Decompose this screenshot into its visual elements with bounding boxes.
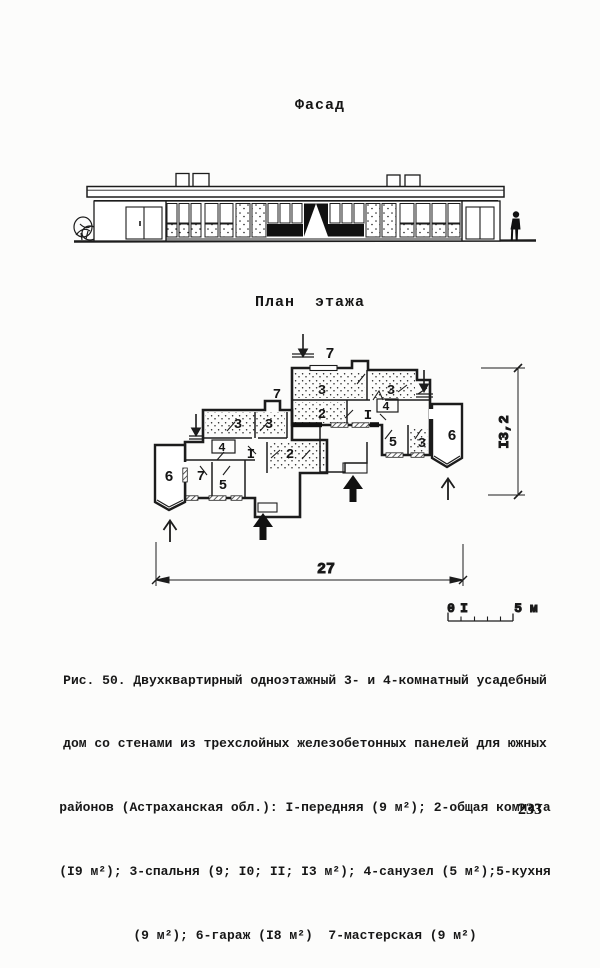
entrance-shadow-right — [328, 224, 364, 237]
right-garage-door — [466, 207, 494, 239]
entry-arrow-up-far-right — [442, 479, 455, 501]
caption-line: районов (Астраханская обл.): I-передняя … — [55, 797, 555, 818]
figure-caption: Рис. 50. Двухквартирный одноэтажный 3- и… — [55, 627, 555, 968]
scale-bar: 0 I 5 м — [447, 601, 538, 621]
room-label-workshop: 7 — [197, 469, 205, 485]
plan-title: План этажа — [10, 294, 600, 311]
room-label-garage-left: 6 — [164, 469, 173, 486]
room-label-bath: 4 — [382, 400, 389, 414]
roof — [87, 187, 504, 202]
person-figure — [511, 211, 521, 240]
floor-plan-drawing: I3,2 27 0 I 5 м 7 3 3 2 I 4 5 3 6 7 3 — [140, 330, 540, 630]
room-label-bedroom: 3 — [265, 417, 273, 433]
caption-line: (I9 м²); 3-спальня (9; I0; II; I3 м²); 4… — [55, 861, 555, 882]
room-label-kitchen: 5 — [389, 435, 397, 451]
dimension-height: I3,2 — [481, 364, 525, 499]
room-label-living: 2 — [318, 407, 326, 423]
scanned-book-page: { "page": { "number": "233", "paper_colo… — [0, 0, 600, 870]
dimension-width-label: 27 — [317, 561, 335, 578]
caption-line: (9 м²); 6-гараж (I8 м²) 7-мастерская (9 … — [55, 925, 555, 946]
entry-arrow-solid-center — [343, 475, 363, 502]
facade-title: Фасад — [20, 97, 600, 114]
page-number: 233 — [500, 801, 560, 819]
room-label-workshop: 7 — [273, 387, 281, 403]
closet-rail — [310, 366, 337, 371]
room-label-garage-right: 6 — [447, 428, 456, 445]
room-label-bedroom: 3 — [234, 417, 242, 433]
room-label-workshop-top: 7 — [325, 346, 334, 363]
caption-line: Рис. 50. Двухквартирный одноэтажный 3- и… — [55, 670, 555, 691]
dimension-width: 27 — [152, 542, 467, 586]
left-garage-door — [126, 207, 162, 239]
room-label-kitchen: 5 — [219, 478, 227, 494]
room-label-bath: 4 — [218, 441, 225, 455]
scale-five-label: 5 м — [514, 601, 538, 616]
room-label-bedroom: 3 — [318, 383, 326, 399]
room-label-living: 2 — [286, 447, 294, 463]
room-label-hall: I — [247, 447, 255, 463]
room-label-hall: I — [364, 408, 372, 424]
facade-elevation-drawing — [70, 155, 540, 255]
room-label-bedroom: 3 — [418, 436, 426, 452]
entry-arrow-down-left — [192, 414, 201, 436]
chimneys — [176, 174, 420, 188]
scale-one-label: I — [460, 601, 468, 616]
entrance-shadow-left — [267, 224, 303, 237]
dimension-height-label: I3,2 — [497, 415, 513, 449]
caption-line: дом со стенами из трехслойных железобето… — [55, 733, 555, 754]
room-label-bedroom: 3 — [387, 383, 395, 399]
entry-arrow-up-far-left — [164, 521, 177, 543]
garage-door-gap-right — [429, 409, 434, 419]
